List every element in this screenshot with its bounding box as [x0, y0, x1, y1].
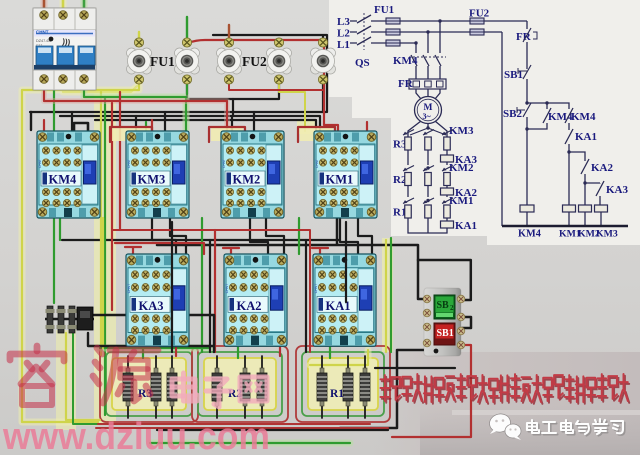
svg-text:DZ47-63: DZ47-63 [36, 39, 51, 43]
svg-text:FR: FR [398, 78, 414, 90]
svg-text:L3: L3 [337, 16, 350, 28]
svg-text:KA1: KA1 [455, 220, 477, 232]
svg-text:L1: L1 [337, 39, 350, 51]
svg-text:KM4: KM4 [49, 173, 78, 187]
svg-text:KM2: KM2 [449, 162, 474, 174]
svg-text:L2: L2 [337, 28, 350, 40]
svg-text:QS: QS [355, 57, 370, 69]
svg-text:SB: SB [437, 300, 450, 311]
svg-text:KM4: KM4 [393, 55, 418, 67]
svg-text:KA2: KA2 [237, 299, 262, 313]
svg-text:2: 2 [450, 304, 454, 312]
svg-text:KM4: KM4 [548, 111, 573, 123]
svg-text:SB1: SB1 [437, 328, 454, 339]
svg-text:FU1: FU1 [374, 4, 394, 16]
svg-text:KA3: KA3 [139, 299, 164, 313]
svg-text:KM3: KM3 [596, 229, 618, 240]
svg-text:KM1: KM1 [449, 195, 473, 207]
svg-text:KM1: KM1 [326, 173, 354, 187]
svg-text:R1: R1 [330, 388, 344, 400]
svg-text:www.dziuu.com: www.dziuu.com [2, 416, 270, 455]
svg-text:KM4: KM4 [518, 229, 541, 240]
svg-text:KM4: KM4 [571, 111, 596, 123]
svg-text:FU2: FU2 [242, 54, 267, 69]
svg-text:FU1: FU1 [150, 54, 175, 69]
svg-text:KM2: KM2 [233, 173, 261, 187]
svg-text:KM3: KM3 [449, 125, 474, 137]
svg-text:KM3: KM3 [138, 173, 166, 187]
svg-text:KA1: KA1 [575, 131, 597, 143]
svg-text:KA3: KA3 [606, 184, 629, 196]
svg-text:CHNT: CHNT [36, 30, 49, 35]
svg-text:3~: 3~ [423, 112, 432, 121]
svg-text:KA2: KA2 [591, 162, 614, 174]
